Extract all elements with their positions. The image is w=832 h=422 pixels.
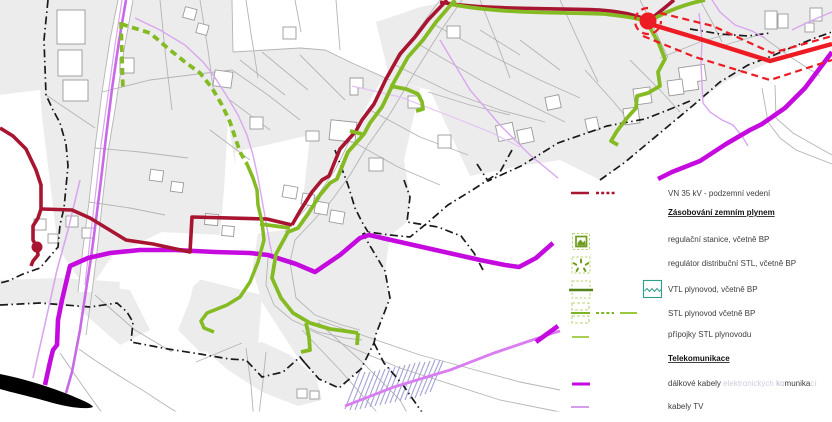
svg-text:přípojky STL plynovodu: přípojky STL plynovodu xyxy=(668,330,751,339)
svg-text:VN 35 kV - podzemní vedení: VN 35 kV - podzemní vedení xyxy=(668,189,771,198)
svg-text:Telekomunikace: Telekomunikace xyxy=(668,354,730,363)
svg-text:regulační stanice, včetně BP: regulační stanice, včetně BP xyxy=(668,235,769,244)
svg-text:regulátor distribuční STL, vče: regulátor distribuční STL, včetně BP xyxy=(668,259,796,268)
svg-text:VTL plynovod, včetně BP: VTL plynovod, včetně BP xyxy=(668,285,758,294)
svg-text:STL plynovod včetně BP: STL plynovod včetně BP xyxy=(668,309,755,318)
svg-text:dálkové kabely elektronických: dálkové kabely elektronických komunikací xyxy=(668,379,817,388)
svg-text:Zásobování zemním plynem: Zásobování zemním plynem xyxy=(668,208,775,217)
svg-text:kabely TV: kabely TV xyxy=(668,402,704,411)
